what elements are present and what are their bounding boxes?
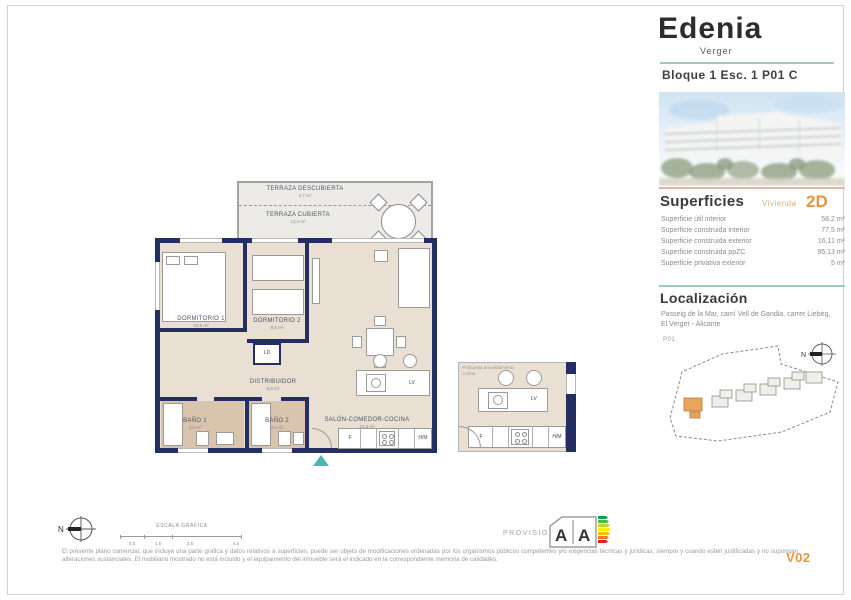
superficies-row: Superficie construida interior77,5 m² (661, 225, 845, 236)
room-label-bano2: BAÑO 2 (254, 418, 300, 424)
dining-chair (374, 316, 386, 326)
legal-disclaimer: El presente plano comercial, que incluye… (62, 548, 798, 564)
north-compass-icon: N (56, 512, 98, 546)
scale-number: 1,5 (155, 541, 161, 546)
toilet (196, 431, 209, 446)
dishwasher-label: LV (522, 396, 546, 402)
window-bathroom2 (262, 448, 292, 453)
superficie-value: 5 m² (831, 258, 845, 269)
site-buildings (712, 372, 822, 407)
burner (389, 440, 394, 445)
superficie-label: Superficie privativa exterior (661, 258, 745, 269)
room-label-dormitorio2: DORMITORIO 2 (247, 318, 307, 324)
project-title: Edenia (658, 12, 762, 46)
room-area-bano2: 3,5 m² (254, 425, 300, 430)
window-dormitorio2-terrace (252, 238, 298, 243)
superficie-value: 77,5 m² (821, 225, 845, 236)
energy-arrow-scale (598, 516, 611, 543)
washbasin (216, 432, 234, 445)
oven-micro-label: H/M (414, 435, 432, 441)
superficie-label: Superficie construida exterior (661, 236, 752, 247)
burner (515, 432, 520, 437)
counter-divider (532, 427, 533, 447)
sink-basin (371, 378, 381, 388)
energy-rating-icon: A A (546, 514, 612, 552)
scale-tick (120, 535, 121, 539)
window-salon-terrace-door (332, 238, 424, 243)
site-compass-icon: N (801, 342, 836, 366)
compass-n-label: N (58, 525, 64, 534)
terrace-table (381, 204, 416, 239)
divider-above-localizacion (659, 285, 845, 287)
room-label-terraza-descubierta: TERRAZA DESCUBIERTA (250, 186, 360, 192)
single-bed (252, 289, 304, 315)
unit-type: 2D (806, 192, 828, 212)
superficie-value: 16,11 m² (818, 236, 845, 247)
site-building-highlighted (684, 398, 702, 418)
window-bathroom1 (178, 448, 208, 453)
burner (522, 439, 527, 444)
address-text: Passeig de la Mar, camí Vell de Gandia, … (661, 310, 837, 330)
oven-micro-label: H/M (548, 434, 566, 440)
wall-bath-top-seg1 (159, 397, 197, 401)
stool (403, 354, 417, 368)
sofa (398, 248, 430, 308)
superficie-value: 95,13 m² (817, 247, 845, 258)
washbasin (293, 432, 304, 445)
building-render-art (659, 92, 845, 186)
room-label-dormitorio1: DORMITORIO 1 (160, 316, 242, 322)
building-render-image (659, 92, 845, 186)
side-table (374, 250, 388, 262)
counter-divider (376, 429, 377, 448)
compass-n-label: N (801, 352, 806, 359)
superficies-row: Superficie privativa exterior5 m² (661, 258, 845, 269)
superficies-row: Superficie construida exterior16,11 m² (661, 236, 845, 247)
dining-table (366, 328, 394, 356)
room-area-dormitorio1: 10,9 m² (160, 323, 242, 328)
counter-divider (360, 429, 361, 448)
pillow (166, 256, 180, 265)
fridge-label: F (340, 435, 360, 441)
room-area-distribuidor: 6,8 m² (238, 386, 308, 391)
counter-divider (508, 427, 509, 447)
scale-number: 0,5 (129, 541, 135, 546)
burner (382, 440, 387, 445)
unit-label: Vivienda (762, 199, 797, 208)
room-label-bano1: BAÑO 1 (172, 418, 218, 424)
wall-bath1-bath2 (245, 397, 249, 448)
room-area-terraza-cubierta: 13,4 m² (248, 219, 348, 224)
room-label-terraza-cubierta: TERRAZA CUBIERTA (248, 212, 348, 218)
burner (389, 434, 394, 439)
entrance-marker (313, 455, 329, 466)
wall-dorm1-bottom (159, 328, 247, 332)
superficie-label: Superficie construida ppZC (661, 247, 745, 258)
energy-letter-a1: A (555, 526, 567, 545)
room-area-bano1: 3,9 m² (172, 425, 218, 430)
superficies-heading: Superficies (660, 193, 744, 210)
block-identifier: Bloque 1 Esc. 1 P01 C (662, 68, 798, 82)
scale-bar: 0,5 1,5 2,5 4,5 (120, 536, 242, 537)
scale-tick (172, 535, 173, 539)
project-subtitle: Verger (700, 46, 733, 56)
burner (382, 434, 387, 439)
room-label-distribuidor: DISTRIBUIDOR (238, 379, 308, 385)
superficies-row: Superficie construida ppZC95,13 m² (661, 247, 845, 258)
burner (522, 432, 527, 437)
superficie-label: Superficie construida interior (661, 225, 750, 236)
room-area-salon: 24,5 m² (318, 424, 416, 429)
scale-number: 4,5 (233, 541, 239, 546)
room-area-dormitorio2: 8,6 m² (247, 325, 307, 330)
dining-chair (352, 336, 362, 348)
room-area-terraza-descubierta: 2,7 m² (250, 193, 360, 198)
burner (515, 439, 520, 444)
stool (373, 354, 387, 368)
counter-divider (398, 429, 399, 448)
energy-letter-a2: A (578, 526, 590, 545)
tv-unit (312, 258, 320, 304)
scale-tick (241, 535, 242, 539)
site-boundary (670, 346, 838, 441)
dishwasher-label: LV (400, 380, 424, 386)
site-plan: N (660, 340, 846, 446)
window-dormitorio1-left (155, 262, 160, 310)
room-label-salon: SALÓN-COMEDOR-COCINA (318, 417, 416, 423)
divider-under-photo (659, 187, 845, 189)
scale-number: 2,5 (187, 541, 193, 546)
kitchen-detail-window (566, 374, 576, 394)
sink-basin (493, 395, 503, 405)
counter-divider (492, 427, 493, 447)
closet-ld-label: LD (253, 350, 281, 356)
superficies-table: Superficie útil interior58,2 m² Superfic… (661, 214, 845, 269)
stool (526, 370, 542, 386)
stool (498, 370, 514, 386)
toilet (278, 431, 291, 446)
window-dormitorio1-top (180, 238, 222, 243)
pillow (184, 256, 198, 265)
wall-bath-top-seg2 (214, 397, 262, 401)
scale-label: ESCALA GRÁFICA (122, 523, 242, 529)
dining-chair (396, 336, 406, 348)
superficies-row: Superficie útil interior58,2 m² (661, 214, 845, 225)
localizacion-heading: Localización (660, 290, 748, 306)
single-bed (252, 255, 304, 281)
wall-right (432, 238, 437, 453)
superficie-label: Superficie útil interior (661, 214, 726, 225)
superficie-value: 58,2 m² (821, 214, 845, 225)
divider-under-title (660, 62, 834, 64)
scale-tick (144, 535, 145, 539)
wall-bath2-salon (305, 397, 309, 448)
